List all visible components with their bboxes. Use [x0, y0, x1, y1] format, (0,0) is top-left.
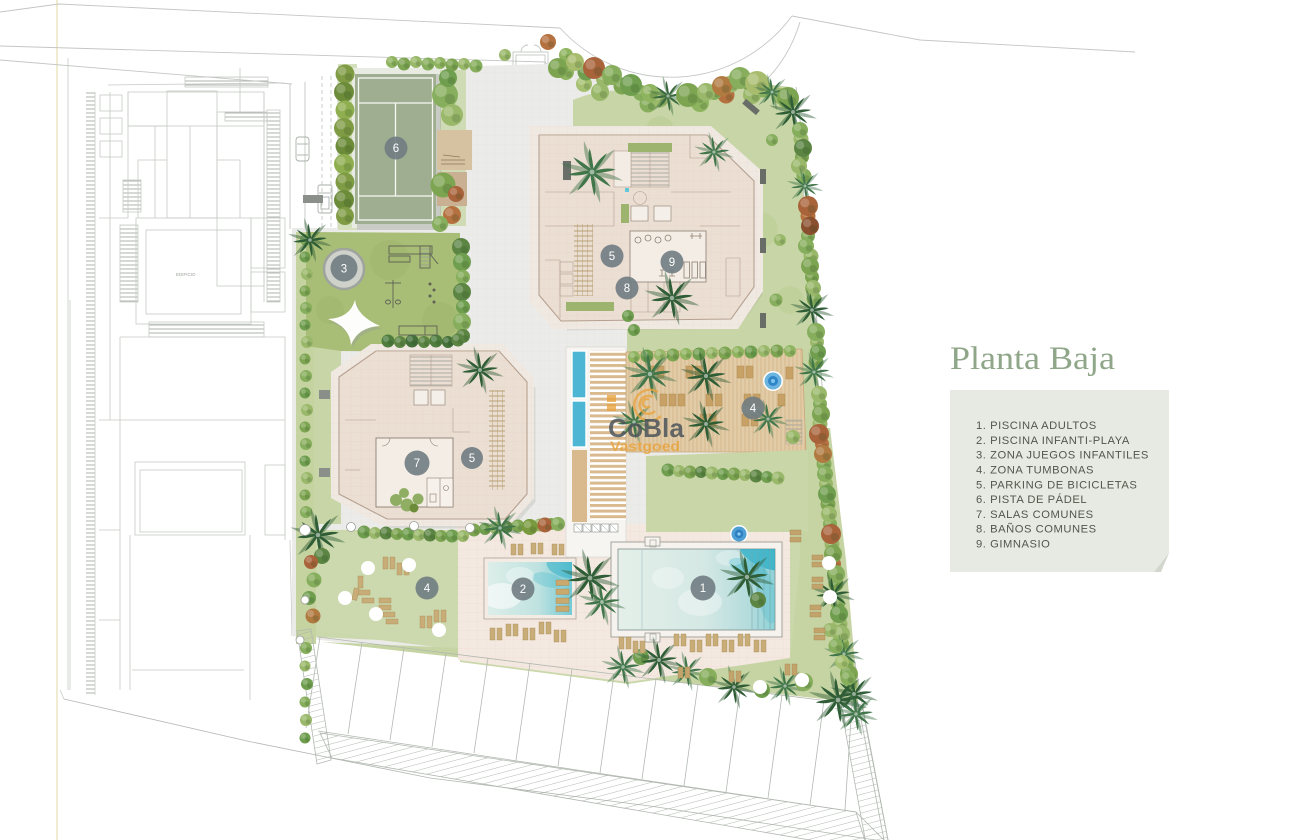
svg-text:8: 8	[624, 283, 630, 295]
svg-text:Vastgoed: Vastgoed	[610, 439, 680, 454]
svg-text:5. PARKING DE BICICLETAS: 5. PARKING DE BICICLETAS	[976, 479, 1137, 491]
svg-text:4. ZONA TUMBONAS: 4. ZONA TUMBONAS	[976, 465, 1094, 477]
svg-text:5: 5	[609, 251, 615, 263]
svg-text:1: 1	[700, 583, 706, 595]
svg-text:9: 9	[669, 257, 675, 269]
svg-text:4: 4	[424, 583, 431, 595]
svg-text:6. PISTA DE PÁDEL: 6. PISTA DE PÁDEL	[976, 493, 1087, 506]
svg-text:4: 4	[750, 403, 757, 415]
svg-text:Planta Baja: Planta Baja	[950, 341, 1115, 377]
svg-text:9. GIMNASIO: 9. GIMNASIO	[976, 538, 1050, 550]
svg-text:2: 2	[520, 584, 526, 596]
svg-text:1. PISCINA ADULTOS: 1. PISCINA ADULTOS	[976, 420, 1097, 432]
svg-text:2. PISCINA INFANTI-PLAYA: 2. PISCINA INFANTI-PLAYA	[976, 435, 1130, 447]
svg-text:7. SALAS COMUNES: 7. SALAS COMUNES	[976, 509, 1094, 521]
svg-text:6: 6	[393, 143, 399, 155]
svg-text:7: 7	[414, 458, 420, 470]
svg-text:3. ZONA JUEGOS INFANTILES: 3. ZONA JUEGOS INFANTILES	[976, 450, 1149, 462]
svg-text:8. BAÑOS COMUNES: 8. BAÑOS COMUNES	[976, 523, 1097, 536]
svg-text:5: 5	[469, 453, 475, 465]
svg-text:3: 3	[341, 263, 347, 275]
svg-text:EDIFICIO: EDIFICIO	[176, 272, 196, 277]
